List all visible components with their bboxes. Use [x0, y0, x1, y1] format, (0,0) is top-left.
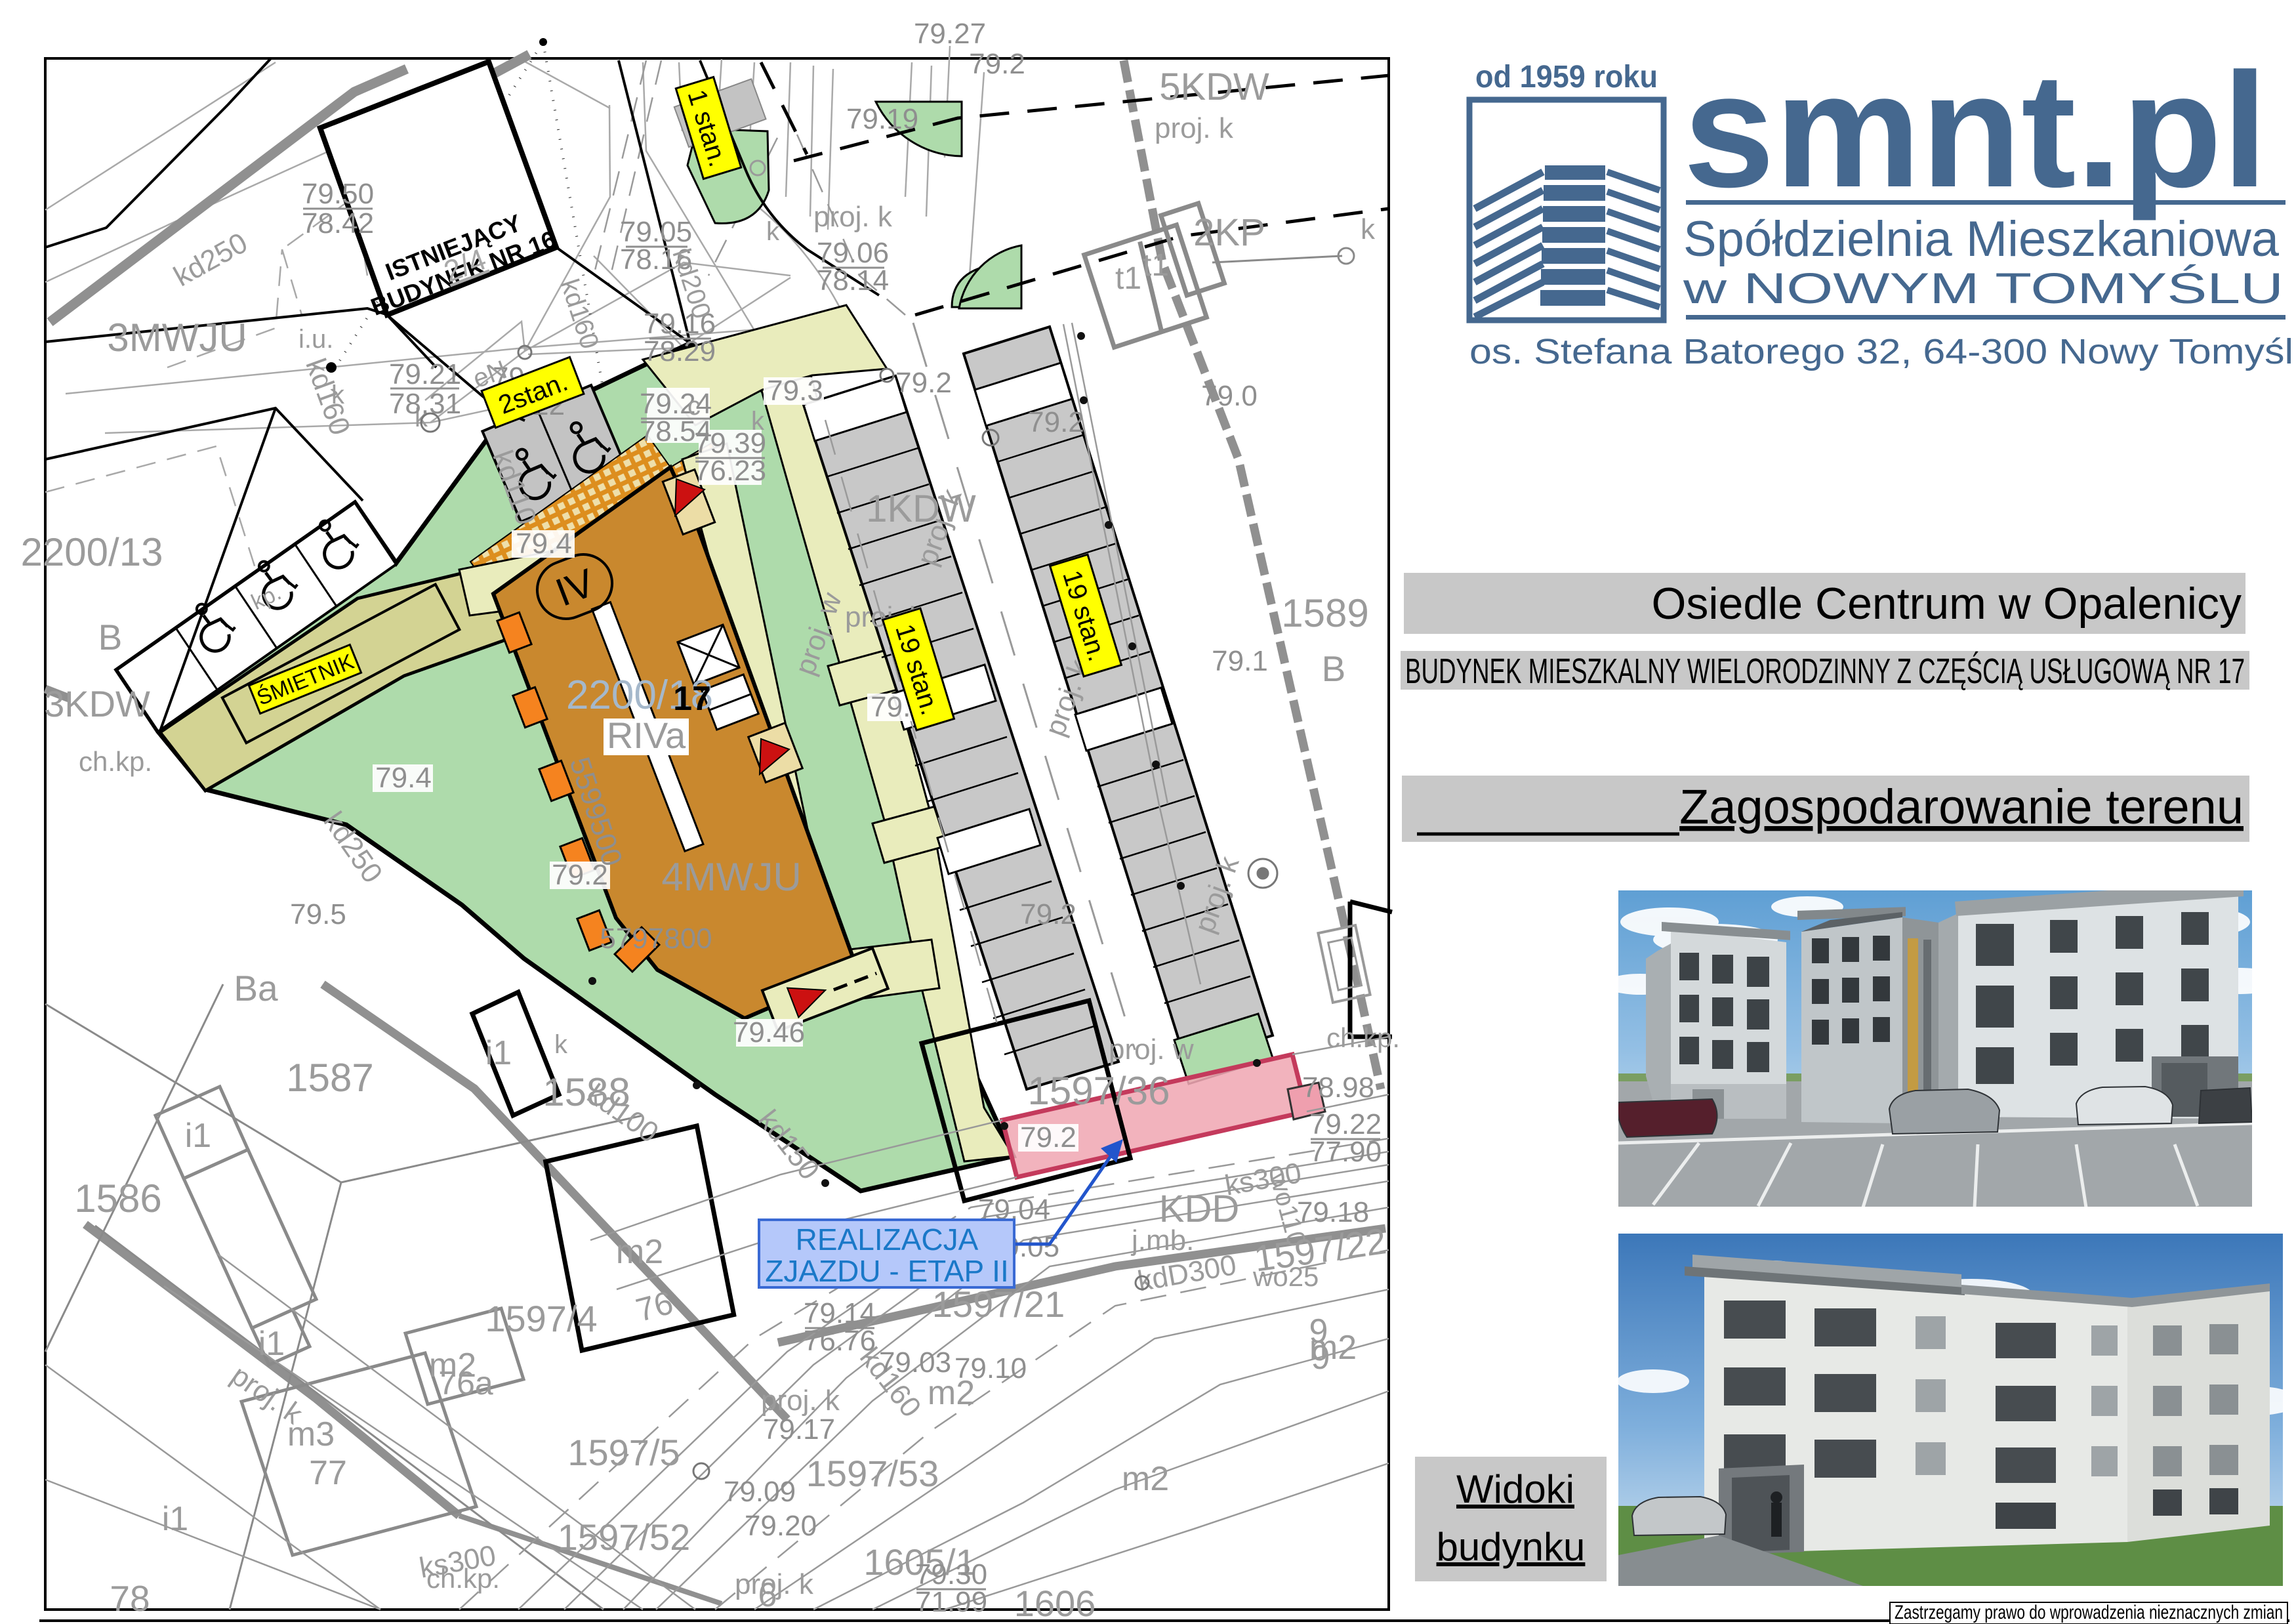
svg-text:1597/52: 1597/52: [558, 1516, 690, 1558]
svg-text:76.76: 76.76: [804, 1325, 876, 1357]
svg-text:RIVa: RIVa: [607, 715, 686, 756]
svg-text:proj. k: proj. k: [1155, 112, 1234, 144]
svg-text:78.98: 78.98: [1302, 1072, 1374, 1104]
svg-text:71.99: 71.99: [915, 1586, 987, 1618]
svg-text:proj. w: proj. w: [1109, 1033, 1194, 1066]
svg-text:1606: 1606: [1014, 1583, 1096, 1624]
svg-text:BUDYNEK MIESZKALNY WIELORODZIN: BUDYNEK MIESZKALNY WIELORODZINNY Z CZĘŚC…: [1405, 651, 2245, 691]
svg-text:79.2: 79.2: [969, 48, 1025, 80]
svg-text:budynku: budynku: [1437, 1525, 1586, 1569]
svg-text:wo25: wo25: [1252, 1261, 1319, 1292]
svg-text:1597/4: 1597/4: [485, 1298, 597, 1339]
svg-text:Widoki: Widoki: [1456, 1467, 1574, 1511]
svg-text:77: 77: [309, 1454, 347, 1492]
svg-text:79.4: 79.4: [375, 762, 432, 794]
svg-text:79.2: 79.2: [1020, 1121, 1076, 1154]
svg-text:2200/13: 2200/13: [21, 530, 163, 574]
svg-text:Zagospodarowanie terenu: Zagospodarowanie terenu: [1679, 780, 2244, 834]
svg-text:m2: m2: [1122, 1460, 1169, 1498]
svg-text:79.50: 79.50: [302, 178, 374, 210]
svg-text:3MWJU: 3MWJU: [107, 316, 247, 360]
svg-text:78.29: 78.29: [644, 335, 716, 367]
svg-text:smnt.pl: smnt.pl: [1683, 39, 2268, 221]
svg-text:79.17: 79.17: [763, 1413, 835, 1446]
svg-text:76a: 76a: [438, 1365, 493, 1402]
svg-text:1586: 1586: [74, 1176, 161, 1220]
svg-text:ch.kp.: ch.kp.: [1326, 1022, 1400, 1053]
svg-text:Ba: Ba: [234, 968, 278, 1009]
svg-text:79.2: 79.2: [1028, 406, 1084, 438]
svg-text:i.u.: i.u.: [298, 325, 333, 354]
svg-text:Zastrzegamy prawo do wprowadze: Zastrzegamy prawo do wprowadzenia niezna…: [1895, 1602, 2283, 1623]
svg-text:79.0: 79.0: [1201, 380, 1258, 412]
svg-text:REALIZACJA: REALIZACJA: [796, 1222, 979, 1257]
svg-text:w NOWYM TOMYŚLU: w NOWYM TOMYŚLU: [1683, 264, 2284, 312]
svg-text:78.42: 78.42: [302, 207, 374, 239]
svg-text:79.27: 79.27: [914, 18, 986, 50]
svg-text:proj. k: proj. k: [761, 1385, 840, 1417]
svg-text:5KDW: 5KDW: [1159, 66, 1269, 108]
svg-text:m2: m2: [616, 1233, 663, 1271]
svg-text:1589: 1589: [1281, 591, 1368, 635]
svg-text:Spółdzielnia Mieszkaniowa: Spółdzielnia Mieszkaniowa: [1683, 211, 2280, 267]
svg-text:i1: i1: [185, 1117, 211, 1155]
svg-text:B: B: [98, 617, 123, 657]
svg-text:Osiedle Centrum w Opalenicy: Osiedle Centrum w Opalenicy: [1652, 579, 2242, 629]
svg-text:j.mb.: j.mb.: [1130, 1224, 1194, 1257]
svg-text:79.5: 79.5: [290, 898, 346, 930]
svg-text:77.90: 77.90: [1309, 1136, 1382, 1168]
svg-text:4MWJU: 4MWJU: [661, 855, 801, 899]
svg-text:78: 78: [110, 1578, 150, 1619]
svg-text:os. Stefana Batorego 32, 64-30: os. Stefana Batorego 32, 64-300 Nowy Tom…: [1469, 332, 2293, 371]
svg-text:i1: i1: [485, 1034, 512, 1072]
svg-text:79.19: 79.19: [846, 103, 918, 135]
svg-text:t1: t1: [1143, 248, 1169, 283]
svg-text:79.03: 79.03: [879, 1346, 951, 1379]
svg-text:B: B: [1322, 648, 1346, 689]
svg-text:t1: t1: [1115, 261, 1141, 296]
svg-text:79.09: 79.09: [724, 1476, 796, 1508]
svg-text:3KDW: 3KDW: [44, 683, 150, 724]
svg-text:k: k: [766, 217, 780, 246]
svg-text:79.4: 79.4: [516, 528, 572, 560]
svg-text:k: k: [1361, 213, 1376, 245]
svg-text:1597/53: 1597/53: [806, 1453, 939, 1494]
svg-text:1597/36: 1597/36: [1028, 1069, 1170, 1113]
svg-text:5797800: 5797800: [600, 923, 712, 955]
svg-text:79.20: 79.20: [745, 1510, 817, 1542]
svg-text:79.2: 79.2: [895, 367, 952, 399]
svg-text:ch.kp.: ch.kp.: [79, 746, 152, 777]
svg-text:79.10: 79.10: [954, 1352, 1027, 1385]
svg-text:79.21: 79.21: [389, 358, 461, 390]
svg-text:c: c: [687, 392, 701, 421]
svg-text:78.14: 78.14: [817, 264, 889, 297]
svg-text:ZJAZDU - ETAP II: ZJAZDU - ETAP II: [765, 1254, 1008, 1288]
svg-text:1597/5: 1597/5: [567, 1432, 680, 1473]
svg-text:9: 9: [1311, 1339, 1330, 1377]
svg-text:i1: i1: [258, 1325, 285, 1363]
svg-text:i1: i1: [162, 1500, 188, 1538]
svg-text:79.2: 79.2: [1020, 898, 1076, 930]
svg-text:proj. k: proj. k: [813, 201, 893, 233]
svg-text:od 1959 roku: od 1959 roku: [1475, 60, 1658, 94]
svg-text:1587: 1587: [286, 1056, 373, 1100]
svg-text:79.3: 79.3: [767, 375, 823, 407]
svg-text:2KP: 2KP: [1193, 211, 1265, 254]
svg-text:76.23: 76.23: [694, 455, 766, 487]
svg-text:17: 17: [673, 680, 711, 718]
svg-text:79.18: 79.18: [1297, 1196, 1369, 1228]
svg-text:79.46: 79.46: [733, 1016, 805, 1049]
svg-text:79.1: 79.1: [1212, 645, 1268, 677]
svg-text:proj. k: proj. k: [735, 1568, 814, 1600]
svg-text:k: k: [554, 1030, 568, 1059]
svg-text:1597/21: 1597/21: [932, 1283, 1065, 1325]
